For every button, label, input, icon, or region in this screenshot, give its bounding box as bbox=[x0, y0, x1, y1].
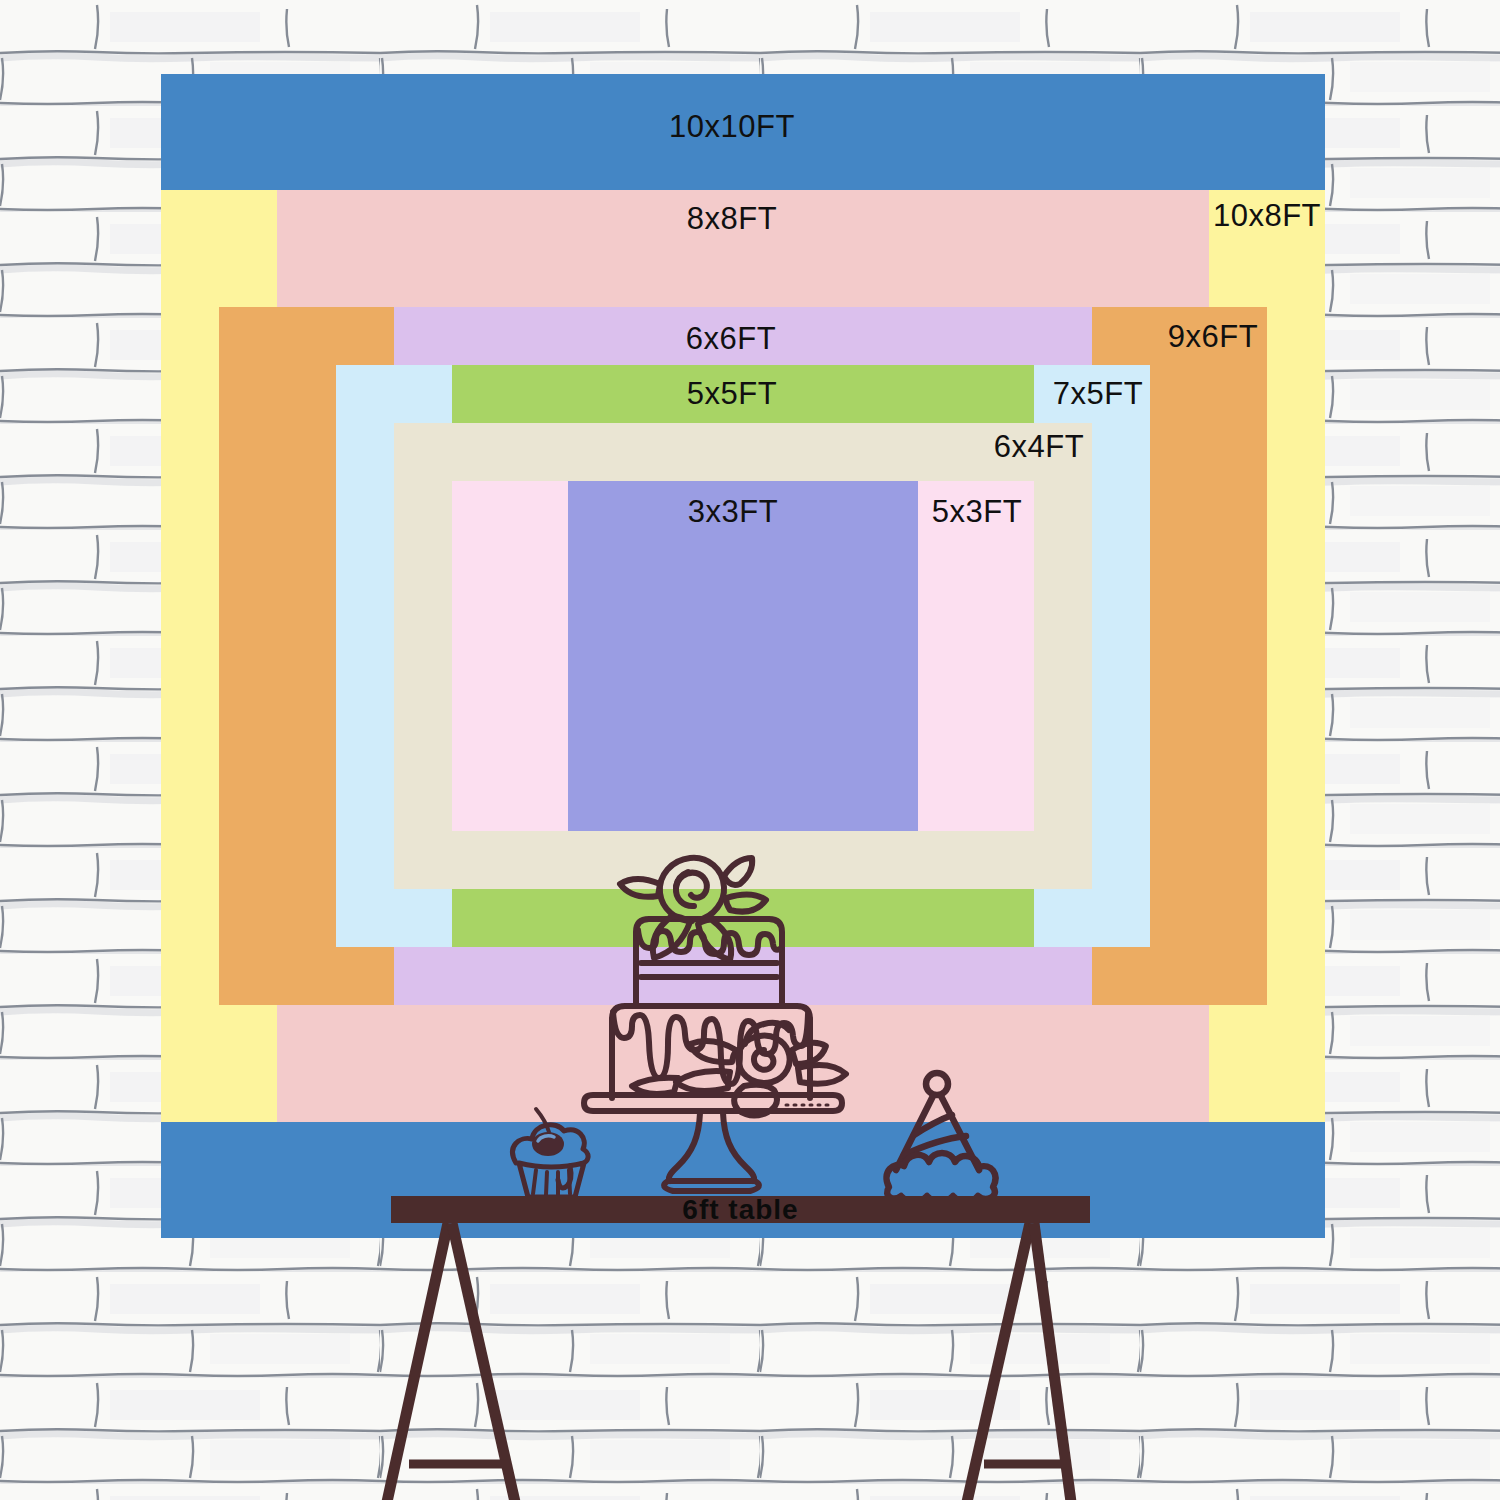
party-hat-icon bbox=[887, 1073, 996, 1201]
tiered-cake-icon bbox=[584, 858, 846, 1191]
decorations-layer bbox=[0, 0, 1500, 1500]
table-label: 6ft table bbox=[682, 1196, 798, 1223]
cupcake-icon bbox=[513, 1109, 589, 1197]
table-bar: 6ft table bbox=[391, 1196, 1090, 1223]
table-legs bbox=[387, 1223, 1071, 1500]
size-chart-stage: 10x10FT10x8FT8x8FT9x6FT6x6FT7x5FT5x5FT6x… bbox=[0, 0, 1500, 1500]
